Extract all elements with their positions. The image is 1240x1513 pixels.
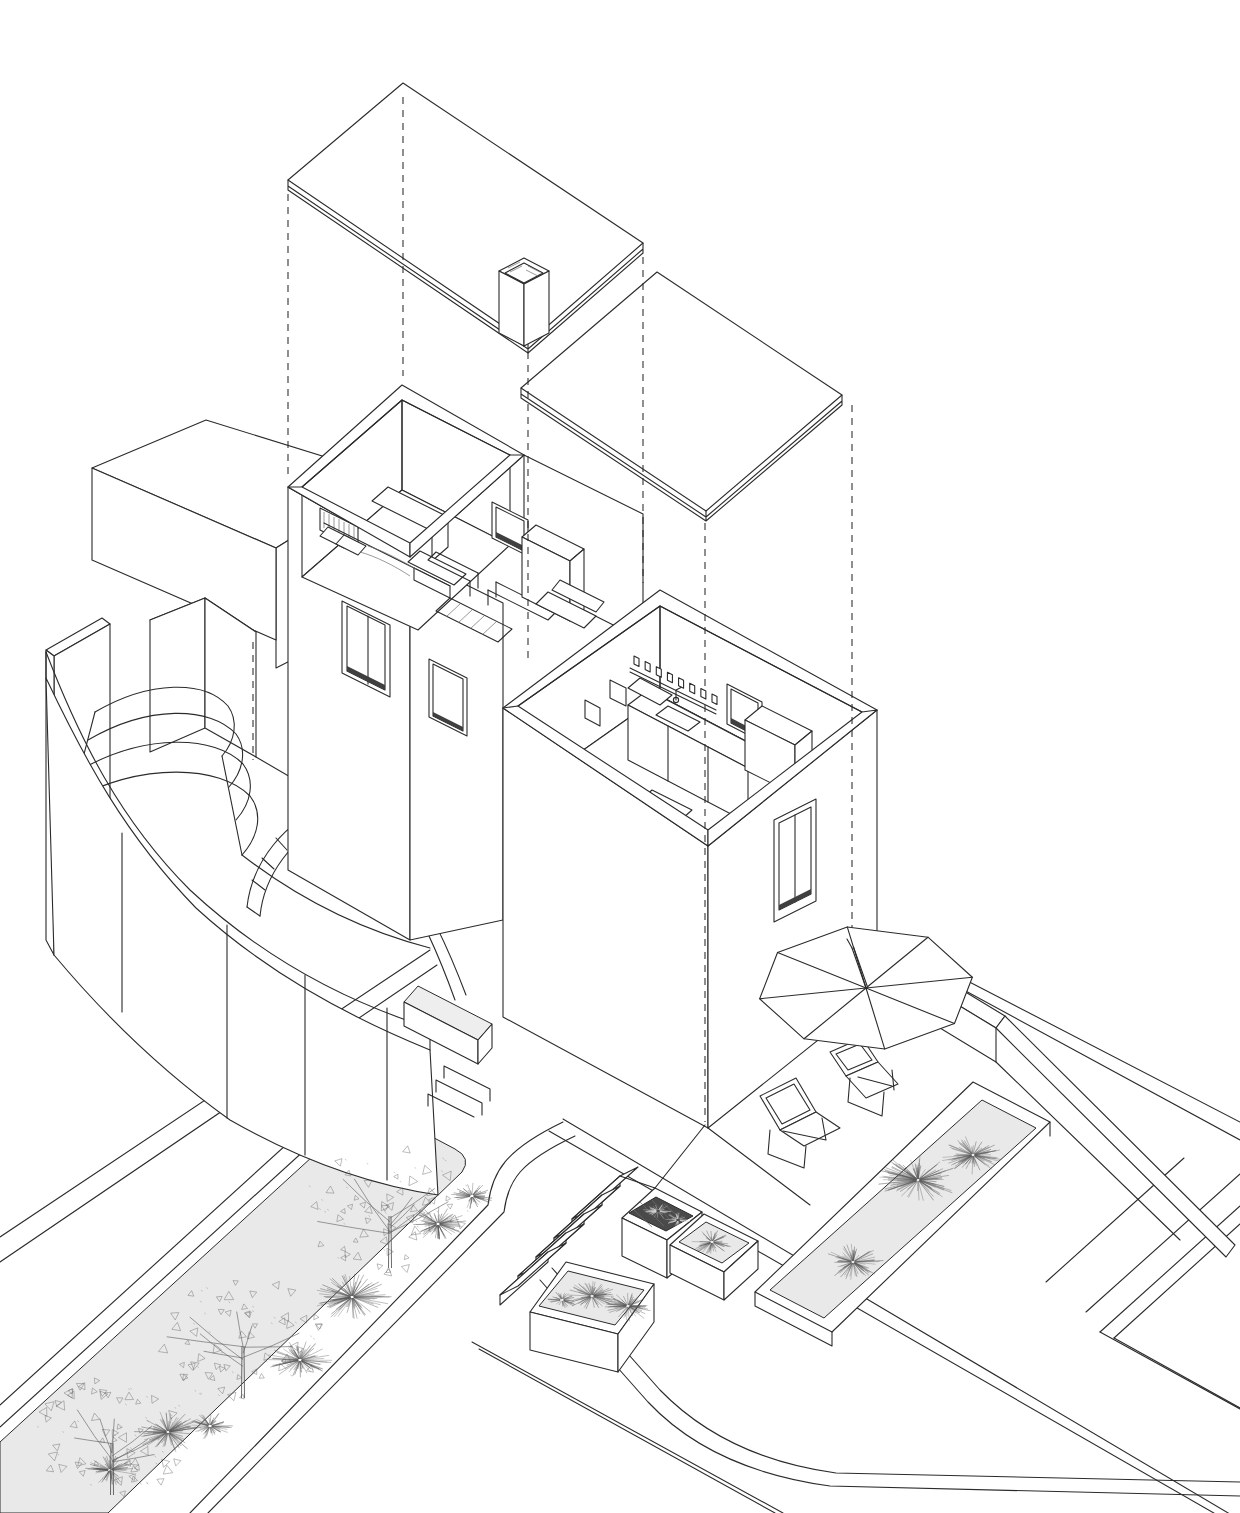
drawing-canvas: [0, 0, 1240, 1513]
stepped-planter-boxes: [530, 1188, 758, 1372]
axonometric-house-drawing: [0, 0, 1240, 1513]
chimney: [499, 258, 549, 346]
kitchen-exterior-window: [774, 799, 816, 922]
sunken-court: [1046, 1158, 1240, 1409]
roof-plane-upper: [288, 83, 643, 353]
kitchen-volume: [503, 590, 877, 1128]
lounge-chair: [760, 1078, 840, 1168]
lounge-chair: [830, 1038, 898, 1116]
annex-block: [150, 598, 256, 757]
